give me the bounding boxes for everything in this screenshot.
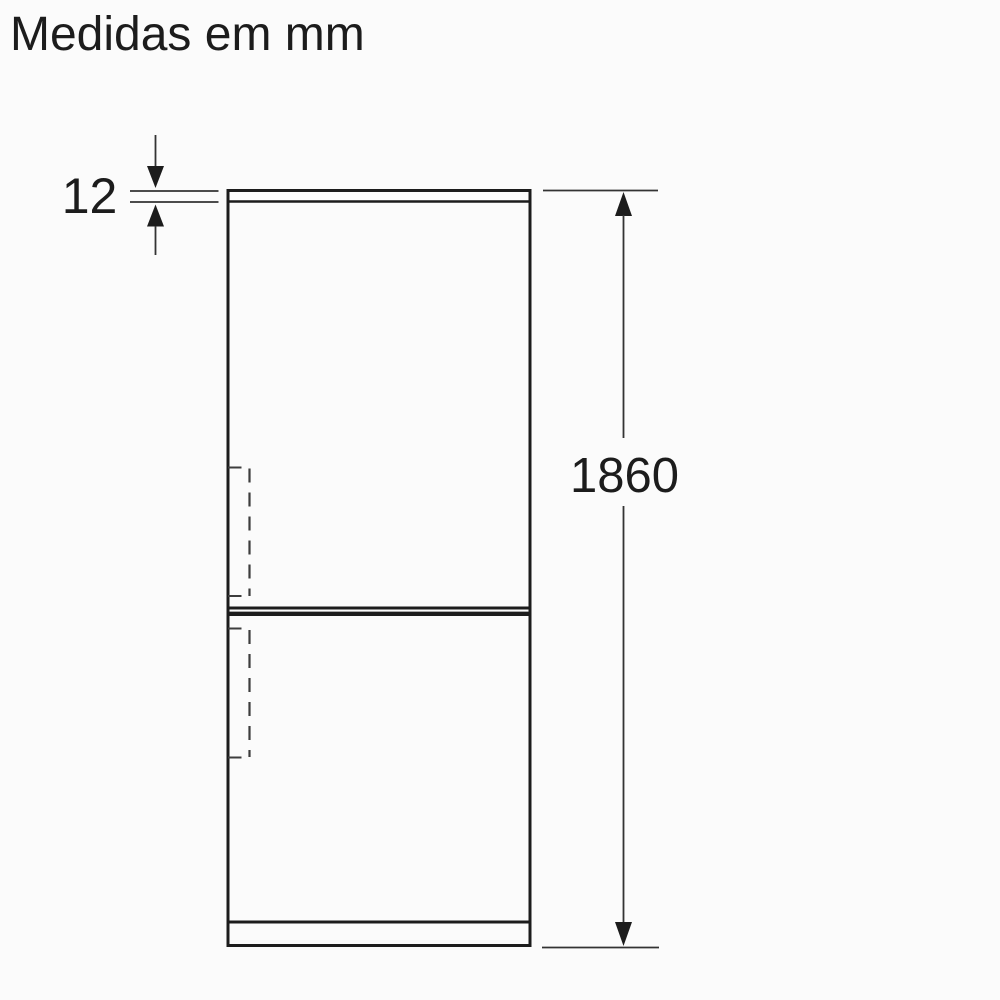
- svg-text:Medidas em mm: Medidas em mm: [10, 8, 365, 61]
- svg-text:12: 12: [62, 168, 118, 224]
- svg-text:1860: 1860: [570, 449, 679, 503]
